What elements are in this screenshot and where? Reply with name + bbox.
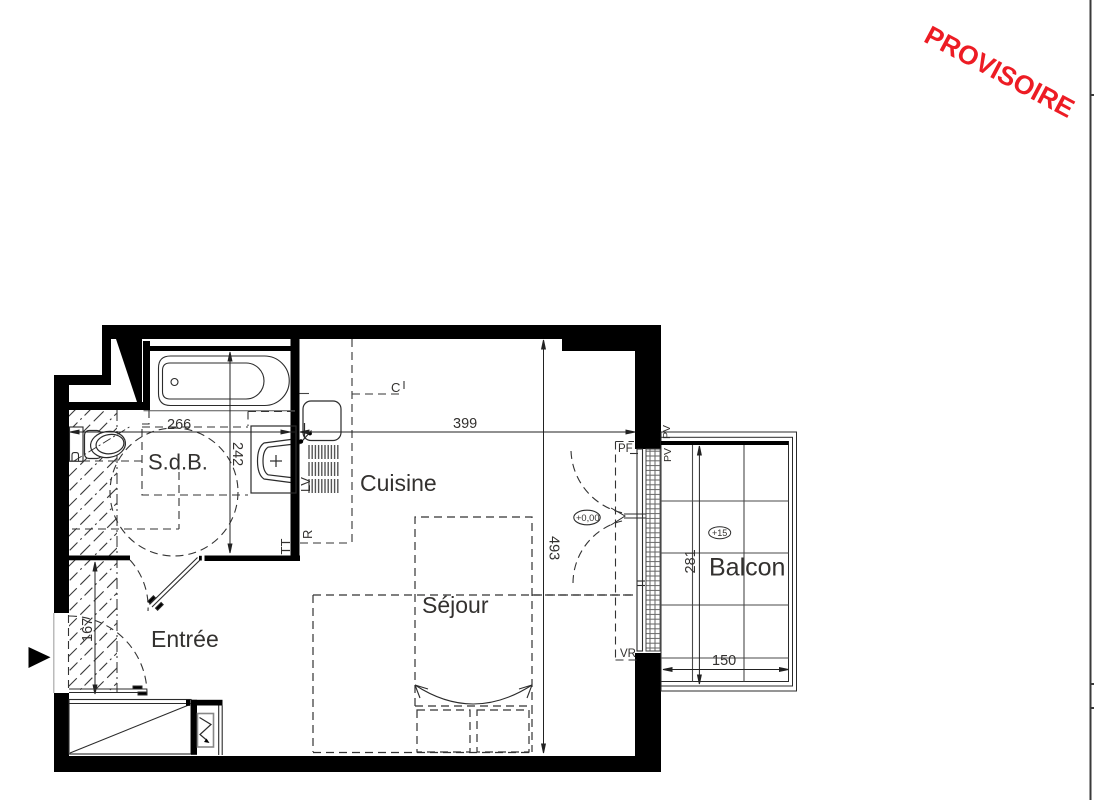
svg-text:LV: LV bbox=[298, 477, 313, 492]
svg-text:TT: TT bbox=[278, 539, 293, 555]
svg-text:PROVISOIRE: PROVISOIRE bbox=[920, 20, 1080, 124]
svg-text:+15: +15 bbox=[712, 528, 727, 538]
svg-text:167: 167 bbox=[80, 618, 96, 642]
svg-text:281: 281 bbox=[683, 549, 699, 573]
svg-text:Cuisine: Cuisine bbox=[360, 470, 437, 496]
svg-text:150: 150 bbox=[712, 653, 736, 669]
svg-text:Entrée: Entrée bbox=[151, 626, 219, 652]
svg-text:Balcon: Balcon bbox=[709, 554, 785, 582]
svg-text:266: 266 bbox=[167, 417, 191, 433]
svg-text:493: 493 bbox=[546, 536, 562, 560]
svg-text:+0,00: +0,00 bbox=[576, 513, 600, 523]
svg-text:399: 399 bbox=[453, 416, 477, 432]
svg-text:PF: PF bbox=[618, 443, 633, 455]
svg-text:VR: VR bbox=[620, 648, 636, 660]
svg-text:242: 242 bbox=[229, 442, 245, 466]
svg-text:PV: PV bbox=[662, 448, 674, 462]
svg-text:C: C bbox=[391, 380, 400, 395]
svg-text:S.d.B.: S.d.B. bbox=[148, 450, 208, 475]
svg-text:Séjour: Séjour bbox=[422, 592, 489, 618]
svg-text:R: R bbox=[300, 530, 315, 539]
